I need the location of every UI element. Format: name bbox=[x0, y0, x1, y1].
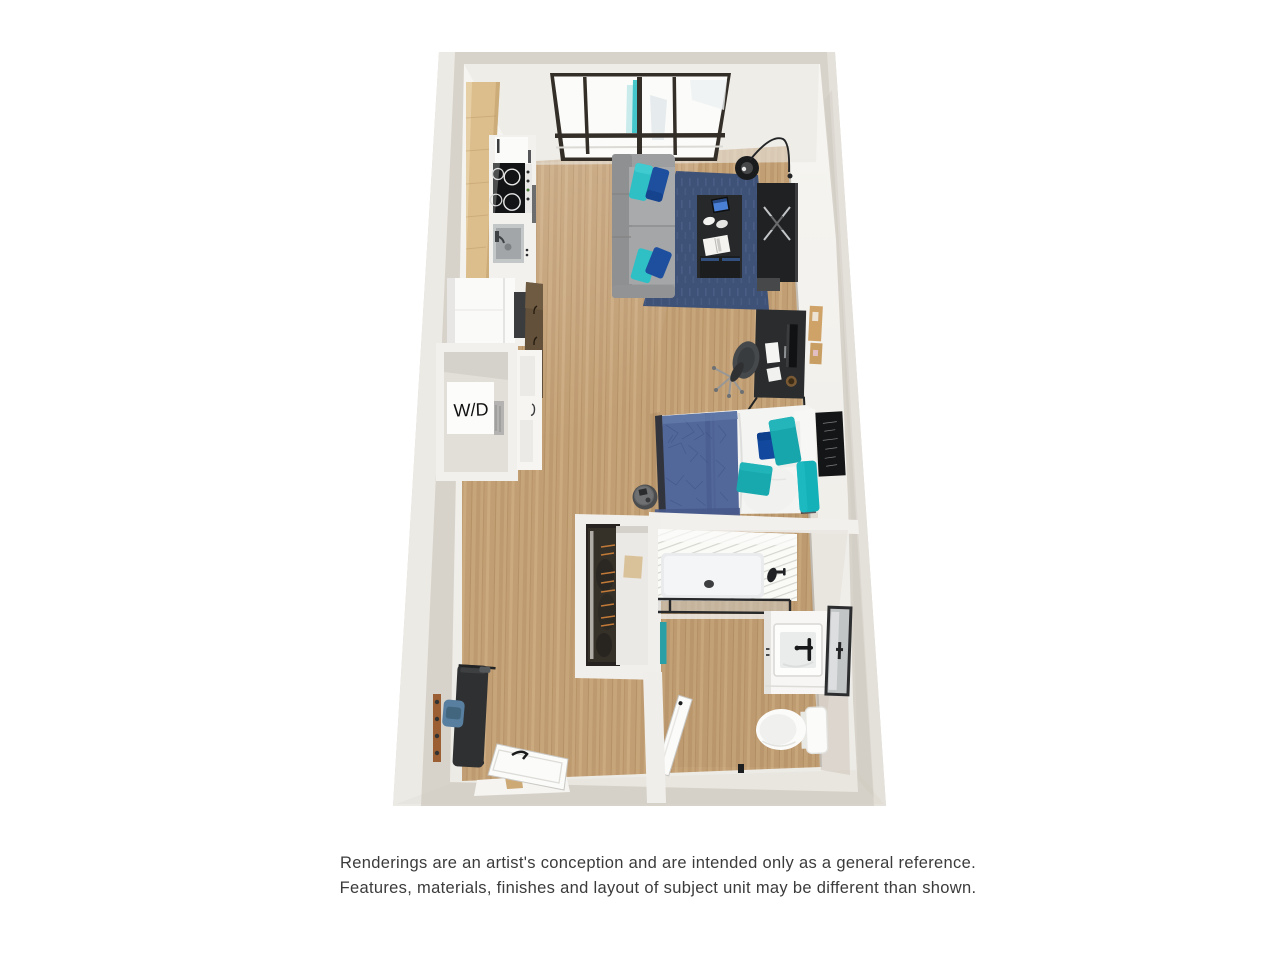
svg-text:W/D: W/D bbox=[453, 399, 489, 420]
